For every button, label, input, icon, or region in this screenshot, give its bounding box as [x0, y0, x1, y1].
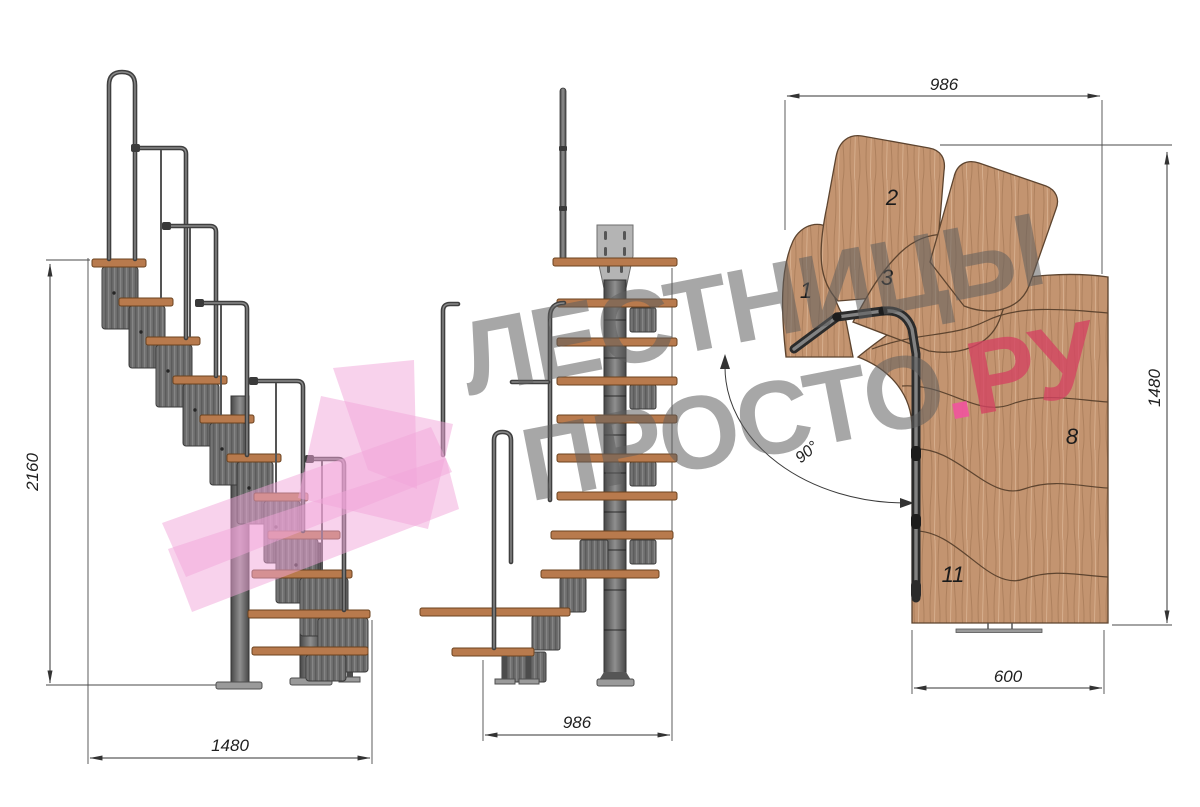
step-number-11: 11	[942, 562, 965, 587]
watermark-domain-tld: РУ	[957, 299, 1105, 437]
plan-depth-dimension: 1480	[1145, 369, 1164, 407]
side-height-dimension: 2160	[23, 453, 42, 492]
base-plate	[956, 623, 1042, 633]
base-plate	[519, 679, 539, 684]
side-width-dimension: 1480	[211, 736, 249, 755]
handrail-post	[559, 88, 567, 264]
staircase-technical-drawing: 2160 1480	[0, 0, 1200, 807]
front-width-dimension: 986	[563, 713, 592, 732]
plan-step-width-dimension: 600	[994, 667, 1023, 686]
base-plate	[495, 679, 515, 684]
support-leg	[526, 656, 531, 680]
plan-width-dimension: 986	[930, 75, 959, 94]
step-number-8: 8	[1066, 424, 1079, 449]
base-plate	[216, 682, 262, 689]
support-leg	[502, 656, 507, 680]
base-plate	[597, 679, 634, 686]
step-number-2: 2	[885, 185, 898, 210]
